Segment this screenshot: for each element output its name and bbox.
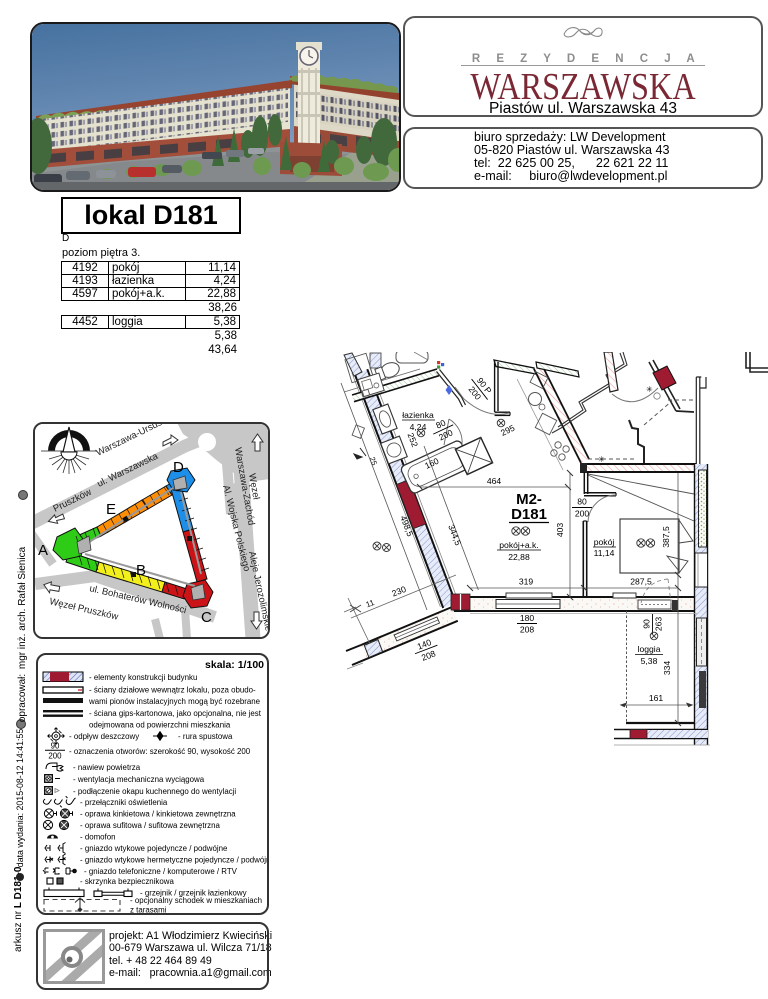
svg-text:D181: D181	[511, 506, 547, 523]
svg-text:11: 11	[365, 598, 376, 610]
svg-text:334: 334	[662, 661, 672, 676]
svg-text:403: 403	[555, 523, 565, 538]
svg-text:263: 263	[654, 617, 664, 632]
svg-text:90: 90	[642, 619, 652, 629]
svg-text:loggia: loggia	[638, 644, 661, 654]
svg-text:208: 208	[520, 625, 535, 635]
svg-text:80: 80	[577, 497, 587, 507]
svg-text:464: 464	[487, 476, 502, 486]
svg-text:180: 180	[520, 613, 535, 623]
svg-text:344,5: 344,5	[446, 523, 463, 547]
svg-text:22,88: 22,88	[508, 552, 530, 562]
svg-text:pokój: pokój	[594, 537, 615, 547]
svg-text:387,5: 387,5	[661, 526, 671, 548]
svg-text:295: 295	[499, 423, 516, 438]
svg-text:✳: ✳	[646, 385, 653, 394]
svg-text:161: 161	[649, 693, 664, 703]
svg-text:252: 252	[406, 431, 421, 448]
svg-text:✳: ✳	[598, 455, 605, 464]
svg-text:200: 200	[575, 509, 590, 519]
svg-text:pokój+a.k.: pokój+a.k.	[499, 540, 538, 550]
svg-text:5,38: 5,38	[641, 656, 658, 666]
svg-text:łazienka: łazienka	[402, 410, 434, 420]
svg-text:319: 319	[519, 577, 534, 587]
svg-text:11,14: 11,14	[594, 548, 615, 558]
svg-text:287,5: 287,5	[630, 577, 652, 587]
